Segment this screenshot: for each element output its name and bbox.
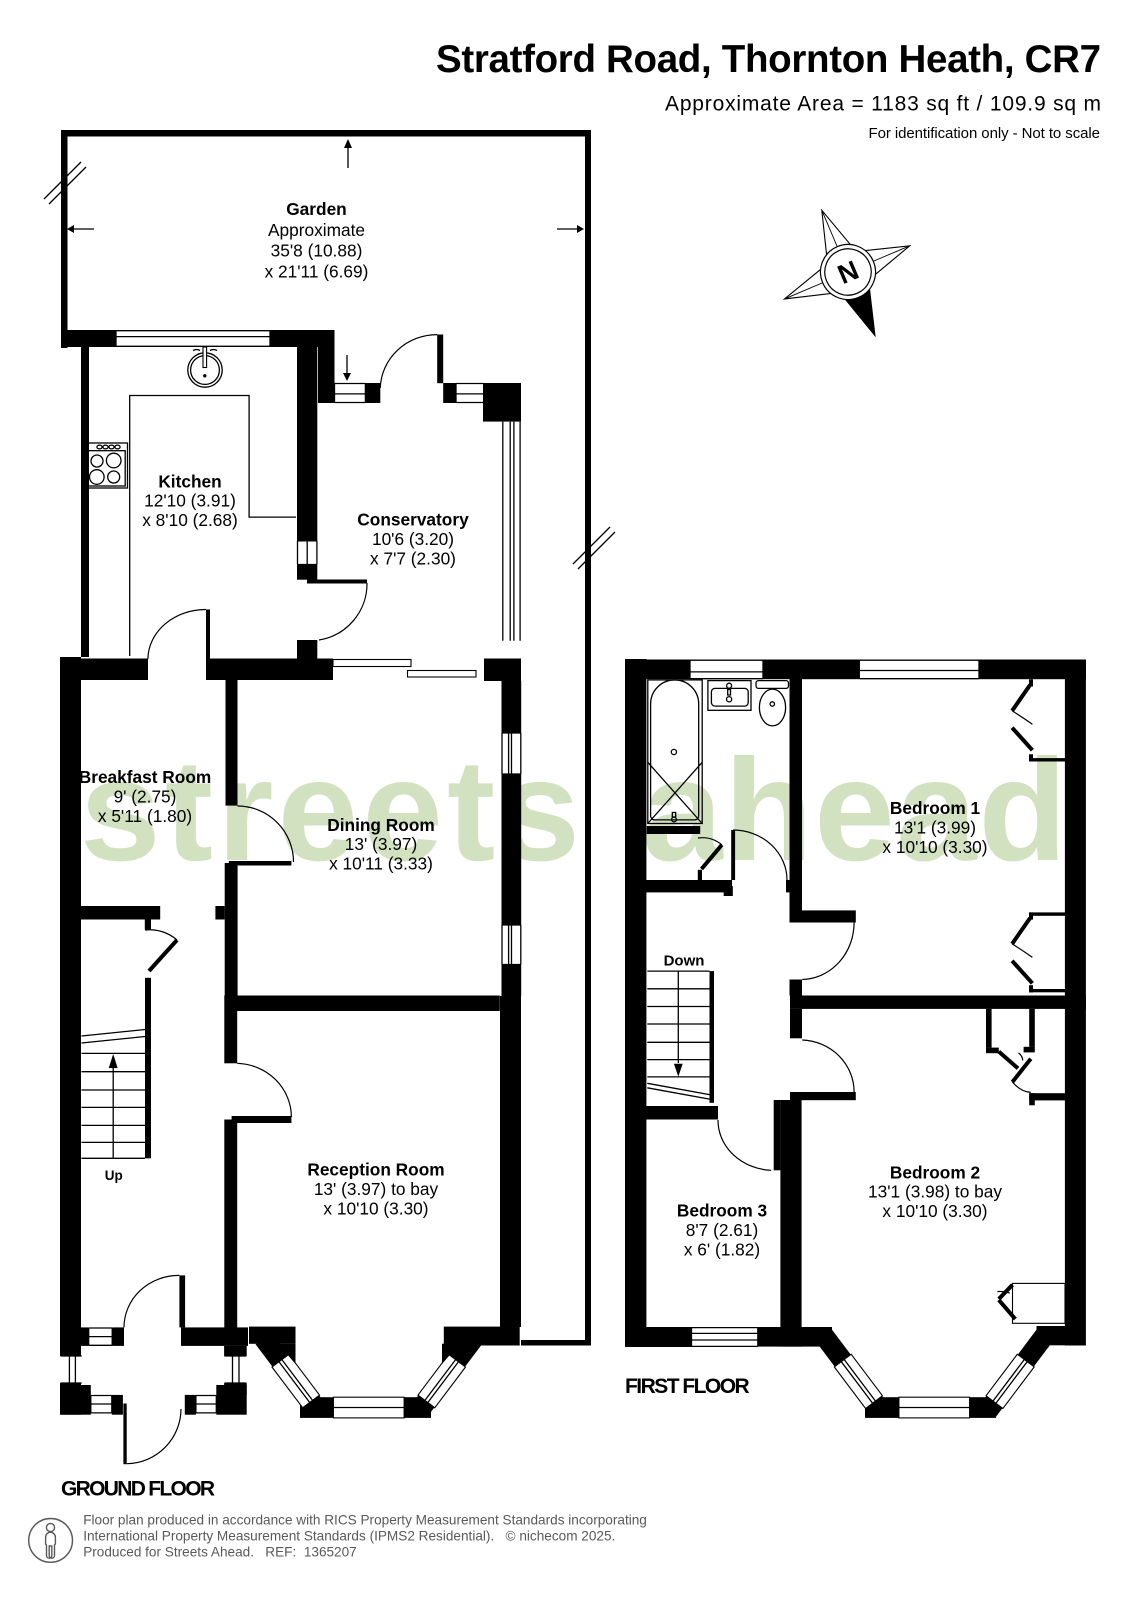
svg-text:13'1 (3.98) to bay: 13'1 (3.98) to bay [868,1182,1002,1202]
svg-text:x 10'10 (3.30): x 10'10 (3.30) [323,1198,428,1218]
svg-text:13' (3.97): 13' (3.97) [345,834,417,854]
svg-text:Dining Room: Dining Room [327,815,435,835]
svg-text:13' (3.97) to bay: 13' (3.97) to bay [314,1179,439,1199]
svg-text:International Property Measure: International Property Measurement Stand… [83,1529,615,1544]
svg-text:35'8 (10.88): 35'8 (10.88) [271,241,363,261]
svg-text:Reception Room: Reception Room [307,1160,444,1180]
svg-text:9' (2.75): 9' (2.75) [114,787,177,807]
svg-text:Floor plan produced in accorda: Floor plan produced in accordance with R… [83,1512,647,1527]
svg-text:10'6 (3.20): 10'6 (3.20) [372,529,454,549]
svg-text:Approximate: Approximate [268,220,365,240]
svg-text:12'10 (3.91): 12'10 (3.91) [144,491,236,511]
svg-text:Breakfast Room: Breakfast Room [79,767,212,787]
svg-text:x 8'10 (2.68): x 8'10 (2.68) [142,510,238,530]
svg-text:Kitchen: Kitchen [158,471,221,491]
svg-text:8'7 (2.61): 8'7 (2.61) [686,1220,758,1240]
svg-text:13'1 (3.99): 13'1 (3.99) [894,817,976,837]
svg-text:For identification only - Not: For identification only - Not to scale [869,125,1101,142]
svg-text:x 7'7 (2.30): x 7'7 (2.30) [370,548,456,568]
svg-text:x 21'11 (6.69): x 21'11 (6.69) [265,261,369,281]
svg-text:x 5'11 (1.80): x 5'11 (1.80) [98,806,192,826]
svg-text:x 10'10 (3.30): x 10'10 (3.30) [882,1201,987,1221]
svg-text:GROUND FLOOR: GROUND FLOOR [61,1478,215,1501]
svg-text:Down: Down [664,953,705,970]
svg-text:x 6' (1.82): x 6' (1.82) [684,1240,760,1260]
svg-text:Stratford Road, Thornton Heath: Stratford Road, Thornton Heath, CR7 [436,38,1101,81]
svg-text:FIRST FLOOR: FIRST FLOOR [625,1375,750,1398]
svg-text:Up: Up [105,1168,123,1183]
svg-text:Conservatory: Conservatory [357,510,469,530]
svg-text:x 10'11 (3.33): x 10'11 (3.33) [329,854,433,874]
svg-text:x 10'10 (3.30): x 10'10 (3.30) [882,837,987,857]
svg-text:Bedroom 1: Bedroom 1 [890,798,981,818]
svg-text:Garden: Garden [286,199,347,219]
svg-text:Bedroom 3: Bedroom 3 [677,1201,767,1221]
svg-text:Approximate Area = 1183 sq ft: Approximate Area = 1183 sq ft / 109.9 sq… [665,93,1101,116]
svg-text:Produced for Streets Ahead.: Produced for Streets Ahead. REF: 1365207 [83,1545,357,1560]
svg-text:Bedroom 2: Bedroom 2 [890,1162,980,1182]
